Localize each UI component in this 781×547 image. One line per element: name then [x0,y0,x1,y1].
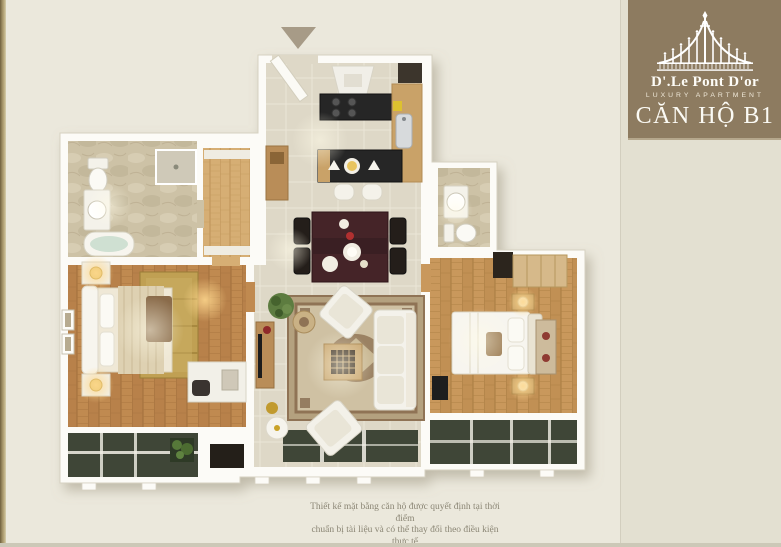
logia-3 [430,420,577,464]
brochure-page: Thiết kế mặt bằng căn hộ được quyết định… [0,0,781,547]
utility-niche [210,444,244,468]
brand-name: D'.Le Pont D'or [628,74,781,91]
floor-plan [0,0,620,547]
bridge-logo-icon [628,0,781,72]
disclaimer: Thiết kế mặt bằng căn hộ được quyết định… [308,502,502,547]
walkin-closet-floor [203,148,250,257]
sidebar: D'.Le Pont D'or LUXURY APARTMENT CĂN HỘ … [620,0,781,547]
logia-1 [68,433,198,477]
entrance-arrow-icon [281,27,316,49]
disclaimer-line-1: Thiết kế mặt bằng căn hộ được quyết định… [308,502,502,525]
brand-header: D'.Le Pont D'or LUXURY APARTMENT CĂN HỘ … [628,0,781,140]
bottom-edge-strip [0,543,781,547]
tv [432,376,448,400]
unit-title: CĂN HỘ B1 [628,103,781,130]
brand-tagline: LUXURY APARTMENT [628,92,781,99]
